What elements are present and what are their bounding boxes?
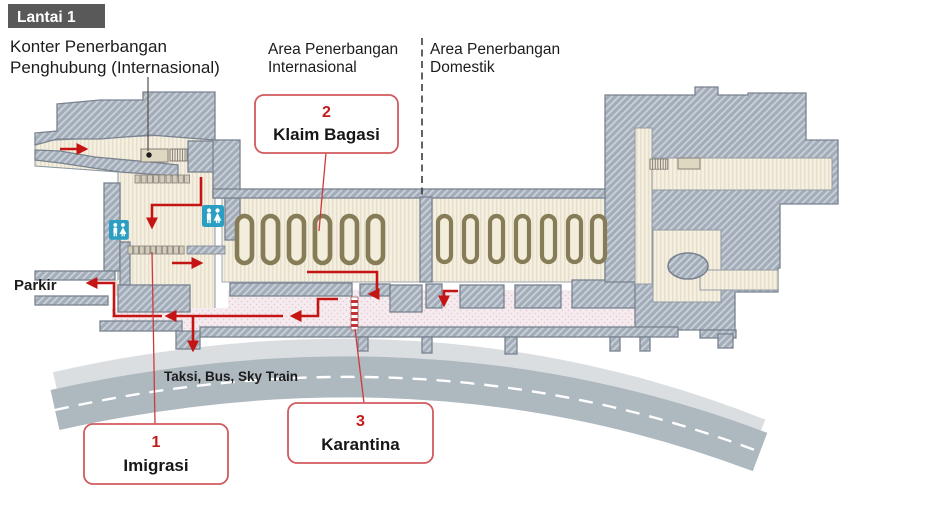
stairs-icon — [170, 149, 187, 161]
check-counters — [135, 175, 190, 183]
svg-text:Area Penerbangan: Area Penerbangan — [268, 41, 398, 58]
callout-number: 2 — [322, 104, 331, 121]
parking-label: Parkir — [14, 277, 57, 294]
taxi-walkway — [176, 331, 200, 349]
callout-label: Klaim Bagasi — [273, 125, 380, 144]
restroom-icon — [109, 220, 129, 240]
svg-text:Internasional: Internasional — [268, 59, 357, 76]
area-international-label: Area Penerbangan Internasional — [268, 41, 398, 76]
transfer-counter — [141, 149, 168, 162]
airport-floorplan-page: Lantai 1 Konter Penerbangan Penghubung (… — [0, 0, 950, 514]
callout-karantina: 3 Karantina — [288, 403, 433, 463]
floor-badge: Lantai 1 — [8, 4, 105, 28]
office-block — [118, 285, 190, 312]
counter-desk — [678, 158, 700, 169]
area-domestic-label: Area Penerbangan Domestik — [430, 41, 560, 76]
callout-klaim-bagasi: 2 Klaim Bagasi — [255, 95, 398, 153]
callout-imigrasi: 1 Imigrasi — [84, 424, 228, 484]
callout-number: 1 — [152, 434, 161, 451]
terminal-map: Lantai 1 Konter Penerbangan Penghubung (… — [0, 0, 950, 514]
transfer-counter-label: Konter Penerbangan Penghubung (Internasi… — [10, 37, 220, 77]
callout-label: Karantina — [321, 435, 400, 454]
restroom-icon — [202, 205, 224, 227]
ground-transport-label: Taksi, Bus, Sky Train — [164, 369, 298, 384]
stairs-icon — [650, 159, 668, 169]
svg-text:Konter Penerbangan: Konter Penerbangan — [10, 37, 167, 56]
island-column — [668, 253, 708, 279]
baggage-carousels-domestic — [438, 216, 605, 262]
floor-badge-label: Lantai 1 — [17, 9, 76, 26]
callout-label: Imigrasi — [123, 456, 188, 475]
svg-text:Domestik: Domestik — [430, 59, 495, 76]
svg-text:Penghubung (Internasional): Penghubung (Internasional) — [10, 58, 220, 77]
quarantine-barrier — [351, 297, 358, 330]
transfer-counter-dot — [146, 152, 151, 157]
svg-text:Area Penerbangan: Area Penerbangan — [430, 41, 560, 58]
callout-number: 3 — [356, 413, 365, 430]
